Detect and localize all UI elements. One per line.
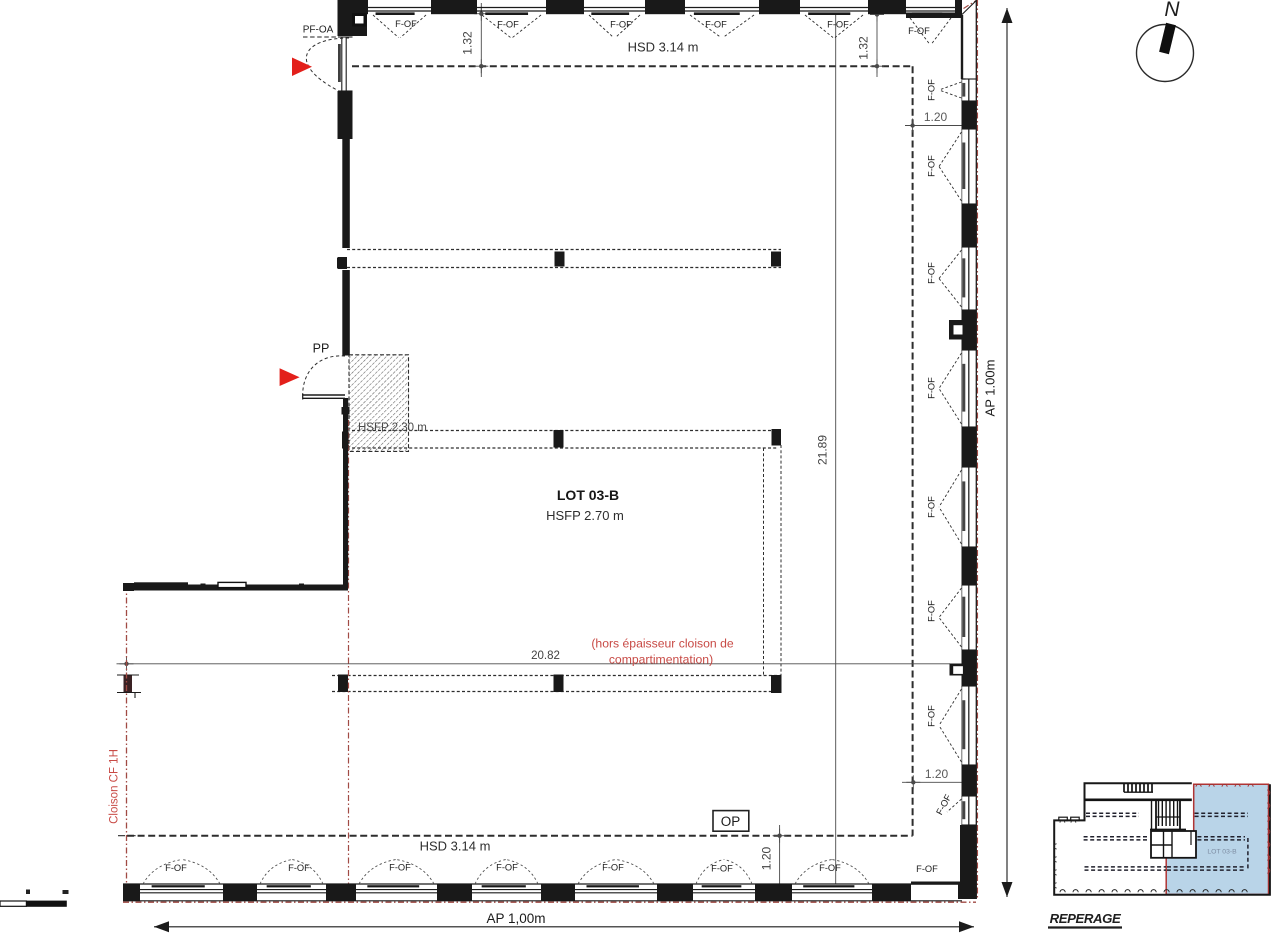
svg-text:1.20: 1.20 [925, 767, 949, 781]
svg-text:F-OF: F-OF [610, 20, 632, 30]
svg-text:F-OF: F-OF [705, 20, 727, 30]
svg-text:(hors épaisseur cloison de: (hors épaisseur cloison de [591, 637, 733, 651]
svg-text:F-OF: F-OF [927, 496, 937, 518]
svg-text:Cloison CF 1H: Cloison CF 1H [109, 749, 121, 824]
svg-text:F-OF: F-OF [602, 863, 624, 873]
svg-text:N: N [1164, 0, 1180, 21]
svg-text:F-OF: F-OF [395, 19, 417, 29]
svg-text:21.89: 21.89 [816, 435, 830, 465]
svg-text:F-OF: F-OF [497, 20, 519, 30]
svg-text:F-OF: F-OF [389, 863, 411, 873]
svg-text:F-OF: F-OF [827, 20, 849, 30]
svg-text:1.32: 1.32 [857, 36, 871, 60]
svg-text:1.20: 1.20 [760, 846, 774, 870]
svg-text:AP 1.00m: AP 1.00m [983, 360, 998, 417]
svg-text:F-OF: F-OF [496, 863, 518, 873]
svg-text:F-OF: F-OF [927, 262, 937, 284]
svg-text:F-OF: F-OF [819, 863, 841, 873]
svg-text:LOT 03-B: LOT 03-B [1207, 849, 1237, 856]
svg-text:PP: PP [313, 342, 330, 356]
svg-text:REPERAGE: REPERAGE [1050, 911, 1122, 926]
svg-text:1.32: 1.32 [461, 31, 475, 55]
svg-text:F-OF: F-OF [927, 155, 937, 177]
svg-text:HSD 3.14 m: HSD 3.14 m [420, 839, 491, 854]
svg-text:compartimentation): compartimentation) [609, 653, 713, 667]
svg-text:OP: OP [721, 814, 741, 829]
svg-text:HSD 3.14 m: HSD 3.14 m [628, 40, 699, 55]
svg-text:F-OF: F-OF [916, 864, 938, 874]
svg-text:1.20: 1.20 [924, 110, 948, 124]
svg-text:AP 1,00m: AP 1,00m [486, 911, 545, 926]
svg-text:F-OF: F-OF [927, 600, 937, 622]
svg-text:F-OF: F-OF [711, 864, 733, 874]
svg-text:HSFP 2.30 m: HSFP 2.30 m [358, 422, 427, 434]
svg-text:F-OF: F-OF [927, 377, 937, 399]
svg-text:20.82: 20.82 [531, 650, 560, 662]
svg-text:PF-OA: PF-OA [303, 25, 334, 36]
svg-text:F-OF: F-OF [288, 863, 310, 873]
svg-text:F-OF: F-OF [927, 79, 937, 101]
svg-text:F-OF: F-OF [165, 863, 187, 873]
svg-text:F-OF: F-OF [927, 705, 937, 727]
svg-text:LOT 03-B: LOT 03-B [557, 487, 619, 503]
svg-text:HSFP 2.70 m: HSFP 2.70 m [546, 508, 624, 523]
svg-text:F-OF: F-OF [908, 26, 930, 36]
